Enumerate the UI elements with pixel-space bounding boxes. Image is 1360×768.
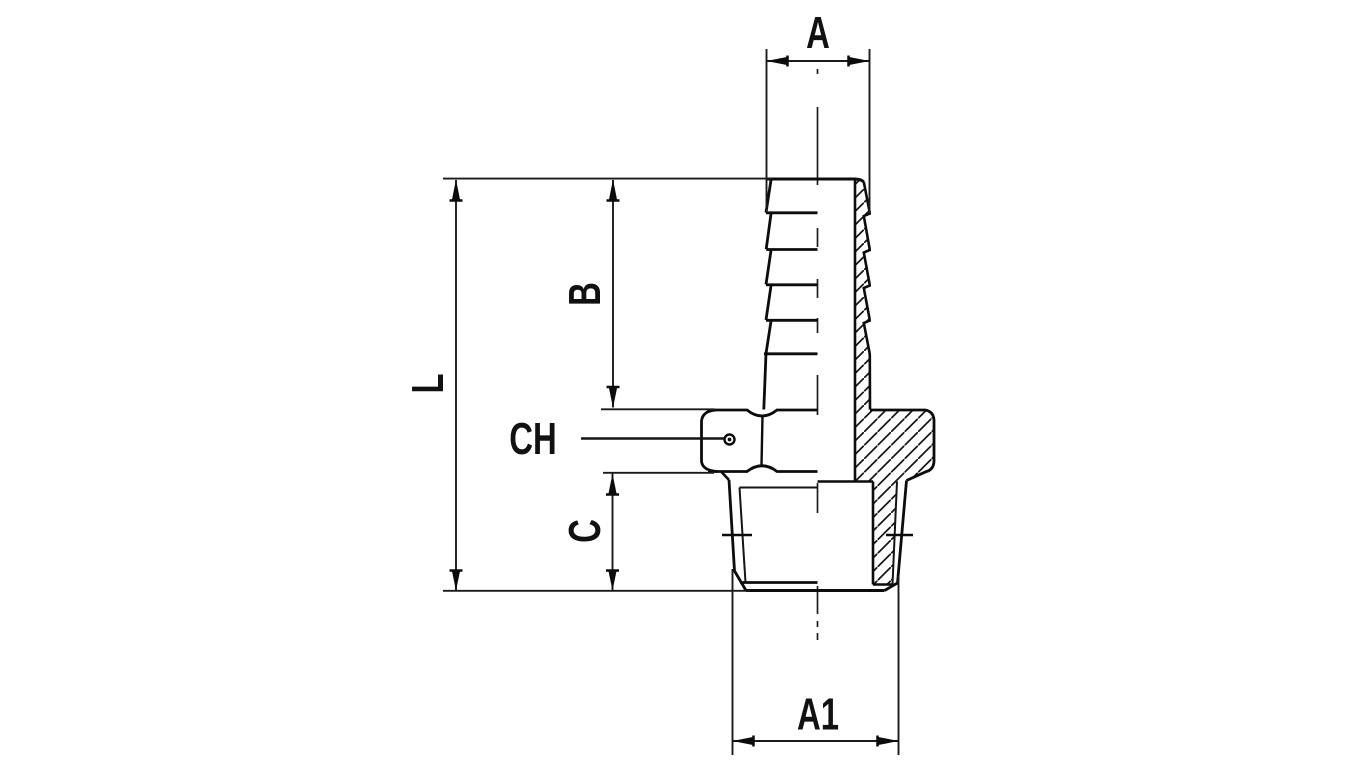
svg-text:A: A	[806, 7, 830, 58]
svg-text:A1: A1	[797, 689, 839, 740]
svg-text:CH: CH	[509, 413, 556, 464]
svg-text:C: C	[559, 519, 610, 543]
svg-text:L: L	[402, 373, 453, 393]
svg-text:B: B	[559, 282, 610, 306]
